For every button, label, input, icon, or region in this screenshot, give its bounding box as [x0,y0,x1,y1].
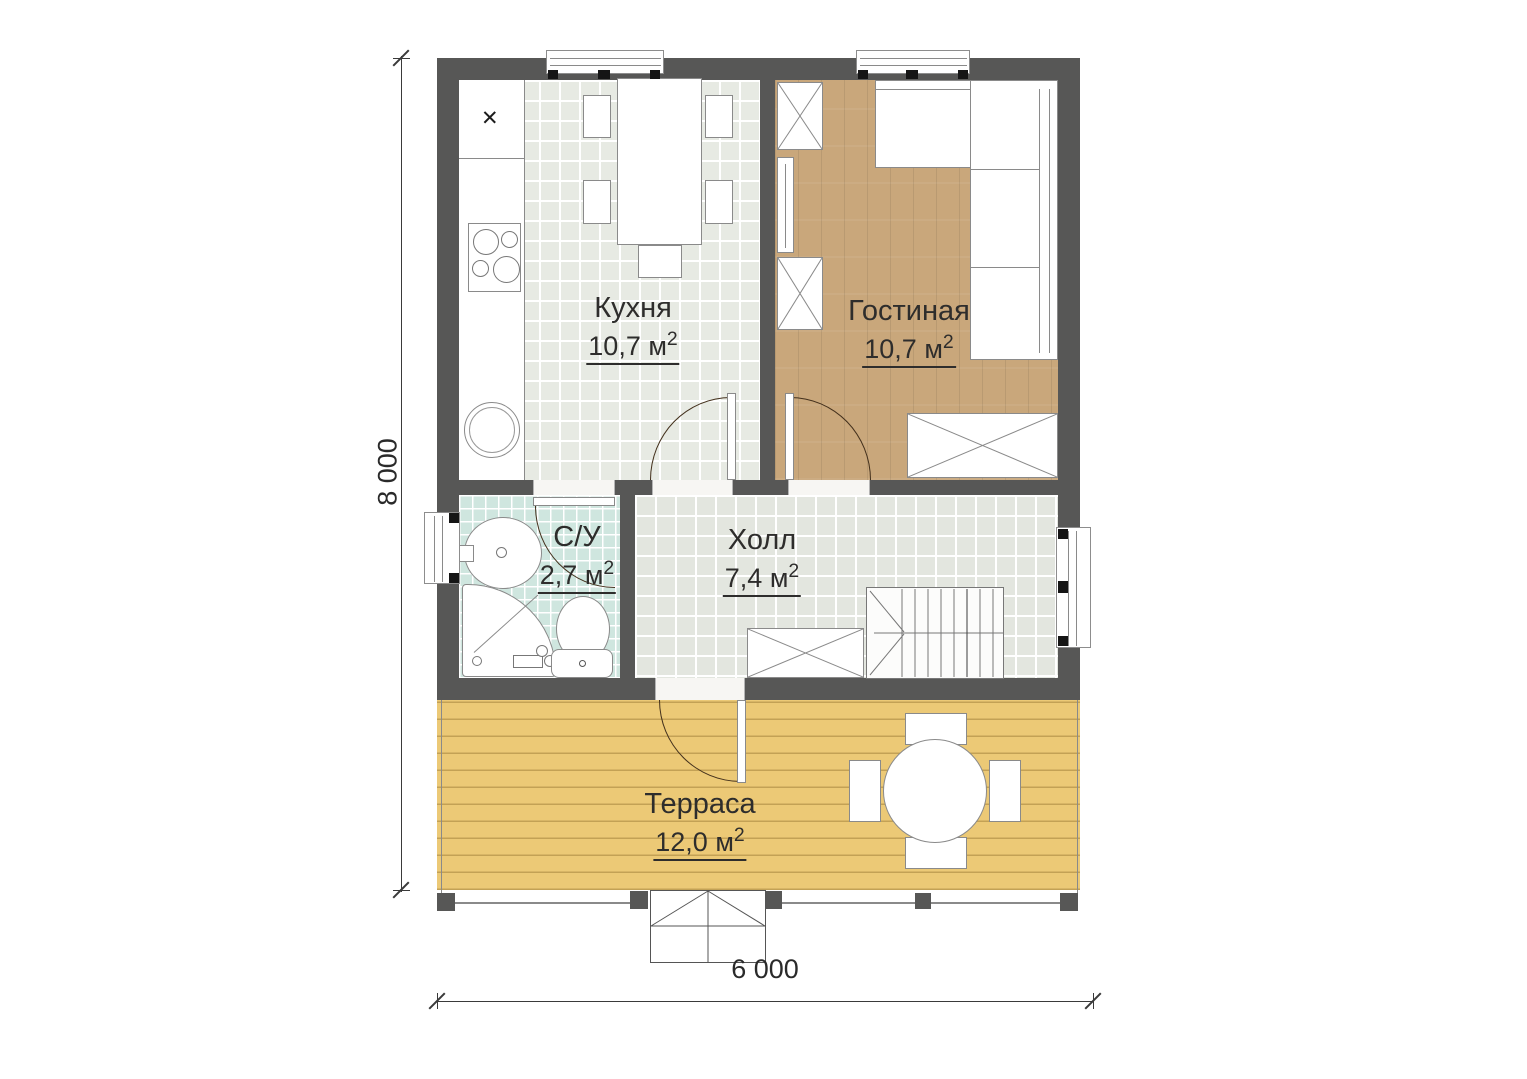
dim-depth-label: 8 000 [373,438,404,506]
kitchen-door-opening [652,480,733,495]
sofa-back-line [1049,89,1050,353]
toilet-button [579,660,586,667]
shower-fixture [513,655,543,668]
terrace-rail-left [441,700,442,905]
bathroom-label: С/У 2,7 м2 [538,521,616,594]
terrace-name: Терраса [644,788,755,820]
kitchen-area: 10,7 м2 [586,324,679,365]
sofa-cushion-line [971,267,1039,268]
dim-ext [393,58,410,59]
terrace-area: 12,0 м2 [653,820,746,861]
dining-chair [638,245,682,278]
terrace-steps [650,890,766,963]
terrace-door-leaf [737,700,746,783]
window-hinge [650,70,660,79]
living-name: Гостиная [848,295,970,327]
window-hinge [449,513,459,523]
terrace-door-opening [655,678,745,700]
window-frame-line [442,516,443,582]
window-frame-line [860,58,967,59]
sofa-chaise [875,80,971,168]
dim-ext [393,890,410,891]
living-cabinet-bottom [777,257,823,330]
kitchen-washer-inner [469,407,515,453]
window-hinge [906,70,918,79]
terrace-post [915,893,931,909]
window-frame-line [434,516,435,582]
terrace-post [630,891,648,909]
window-hinge [858,70,868,79]
kitchen-label: Кухня 10,7 м2 [586,292,679,365]
bathroom-door-leaf [533,497,615,506]
sofa-cushion-line [971,169,1039,170]
living-wardrobe [907,413,1058,478]
kitchen-door-leaf [727,393,736,480]
window-frame-line [550,58,661,59]
dining-chair [583,95,611,138]
terrace-chair-right [989,760,1021,822]
bathroom-door-opening [533,480,615,495]
window-hinge [1058,636,1068,646]
bathroom-sink-faucet [459,545,474,562]
shower-drain [472,656,482,666]
stove-burner [472,260,489,277]
tv-screen [785,164,786,248]
terrace-post [437,893,455,911]
window-hinge [1058,529,1068,539]
sofa-cushion-line [876,89,971,90]
terrace-rail-right [1077,700,1078,905]
window-hinge [1058,581,1068,593]
floor-plan: ✕ [0,0,1527,1079]
bathroom-sink-drain [496,547,507,558]
hall-area: 7,4 м2 [723,556,801,597]
terrace-table [883,739,987,843]
terrace-post [1060,893,1078,911]
kitchen-name: Кухня [586,292,679,324]
window-hinge [958,70,968,79]
stove-burner [473,229,499,255]
sink-cross-icon: ✕ [481,106,499,131]
window-hinge [449,573,459,583]
dim-line-horizontal [437,1001,1094,1002]
terrace-rail-bottom-left [450,902,646,904]
sofa-main [970,80,1058,360]
window-frame-line [1076,531,1077,646]
tv-stand [777,157,794,253]
living-door-opening [788,480,870,495]
hall-label: Холл 7,4 м2 [723,524,801,597]
dining-chair [705,95,733,138]
terrace-label: Терраса 12,0 м2 [644,788,755,861]
living-label: Гостиная 10,7 м2 [848,295,970,368]
stove-burner [493,256,520,283]
window-frame-line [550,65,661,66]
window-hinge [598,70,610,79]
hall-wardrobe [747,628,864,678]
hall-name: Холл [723,524,801,556]
stove-burner [501,231,518,248]
dim-width-label: 6 000 [731,954,799,985]
sofa-back-line [1039,89,1040,353]
terrace-post [764,891,782,909]
living-area: 10,7 м2 [862,327,955,368]
bathroom-name: С/У [538,521,616,553]
window-hinge [548,70,558,79]
bathroom-area: 2,7 м2 [538,553,616,594]
living-cabinet-top [777,82,823,150]
dining-table [617,78,702,245]
terrace-chair-left [849,760,881,822]
kitchen-stove [468,223,521,292]
dining-chair [583,180,611,224]
living-door-leaf [785,393,794,480]
window-frame-line [1068,531,1069,646]
dim-ext [1093,993,1094,1009]
stairs [866,587,1004,679]
window-frame-line [860,65,967,66]
dim-ext [437,993,438,1009]
dining-chair [705,180,733,224]
